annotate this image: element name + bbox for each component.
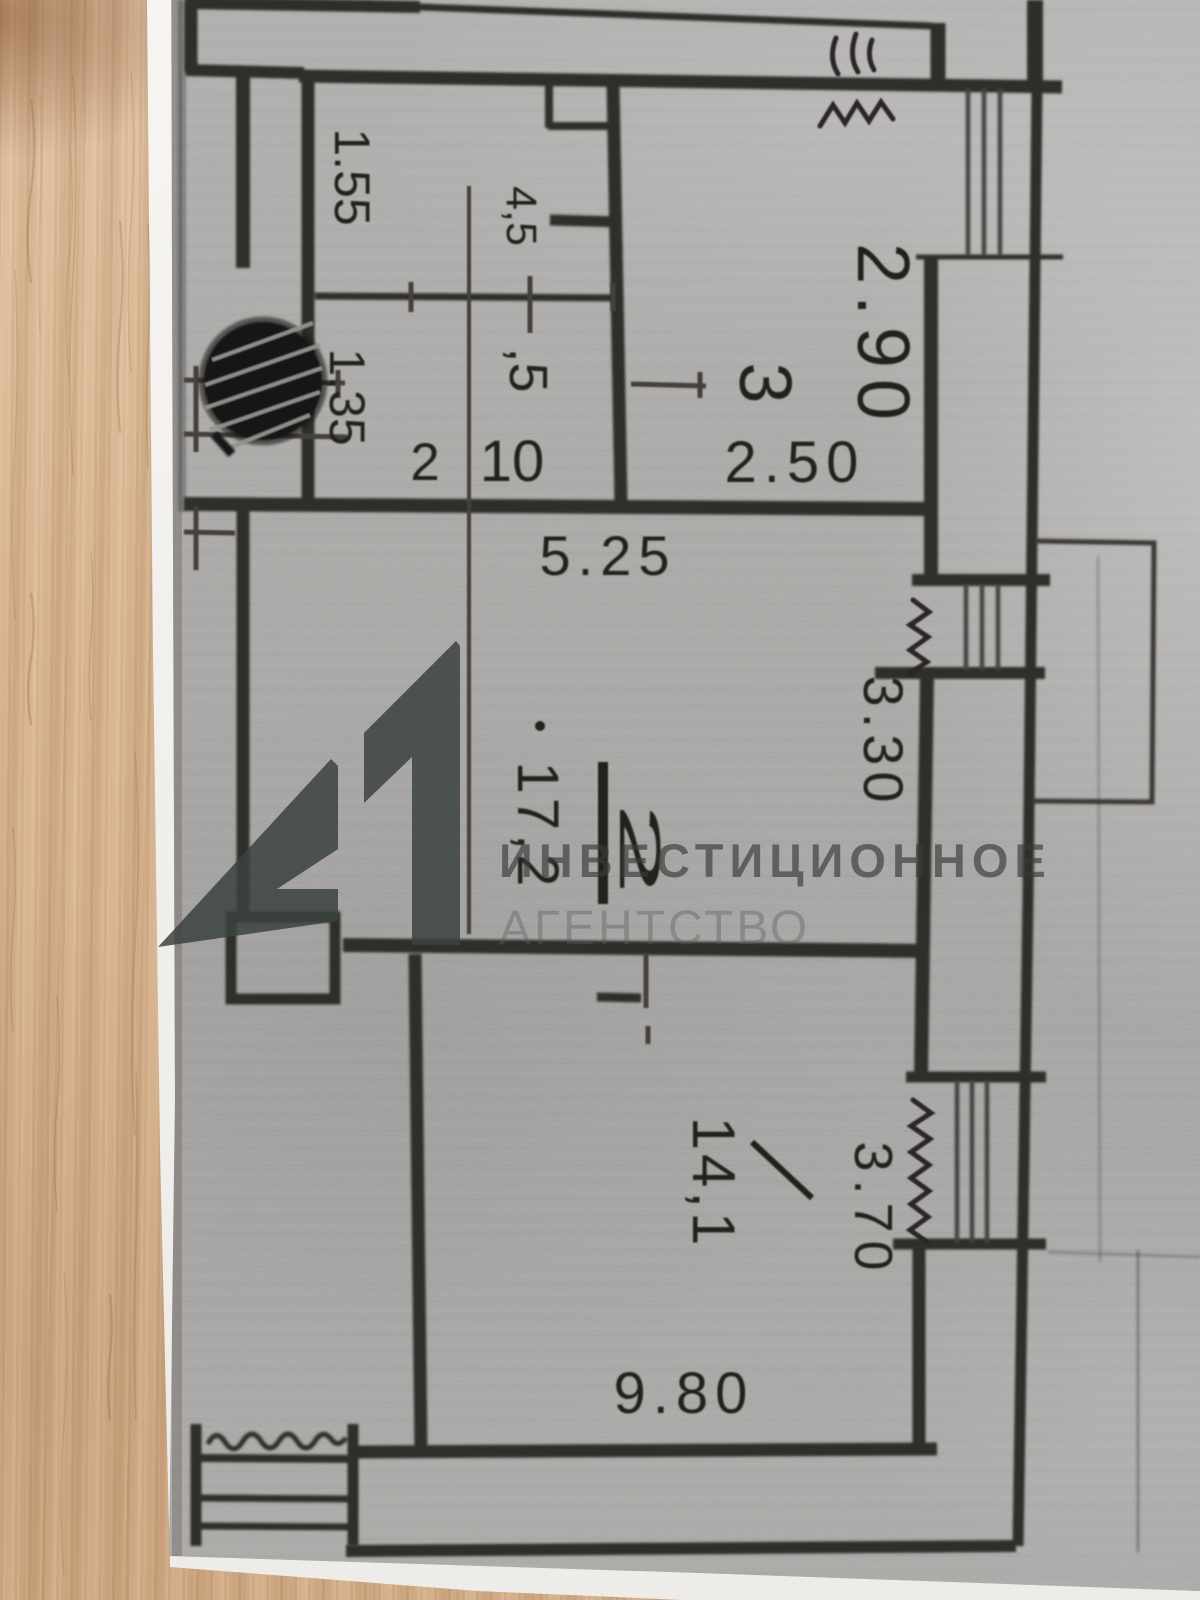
svg-text:ИНВЕСТИЦИОННОЕ: ИНВЕСТИЦИОННОЕ [499, 834, 1052, 887]
svg-text:АГЕНТСТВО: АГЕНТСТВО [499, 902, 810, 955]
